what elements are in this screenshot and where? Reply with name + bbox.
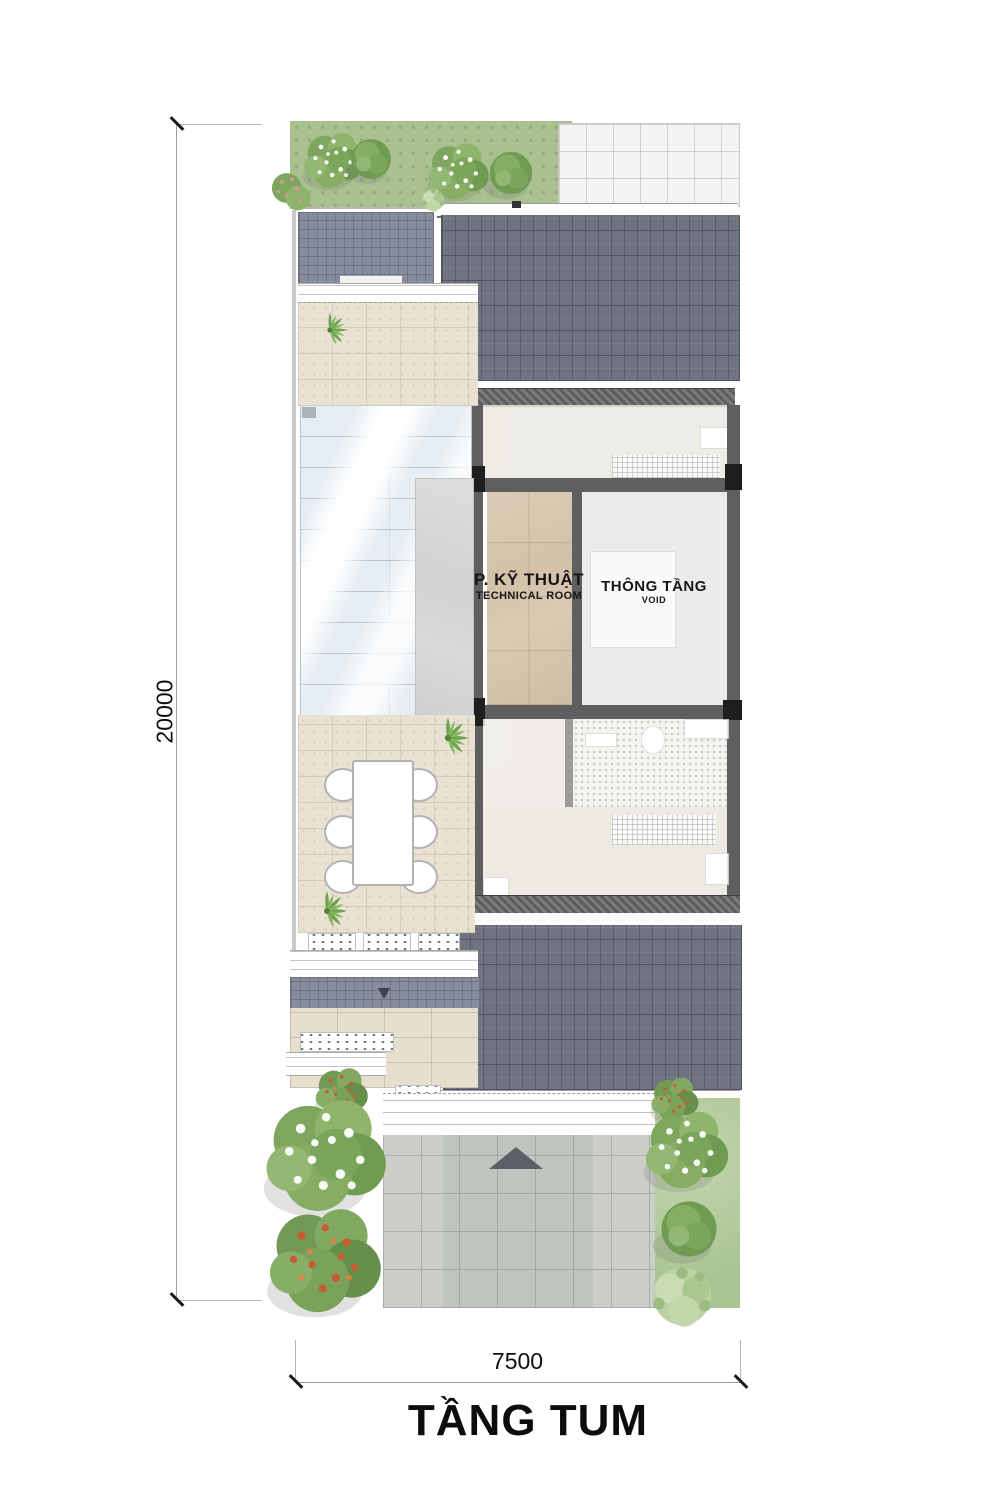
stone-strip xyxy=(415,478,474,717)
dining-table xyxy=(352,760,414,886)
ridge-marker-icon xyxy=(512,201,521,208)
roof-garden xyxy=(290,121,572,209)
horizontal-dimension-label: 7500 xyxy=(295,1348,740,1375)
ledge-band xyxy=(286,1052,386,1076)
wall-horizontal-lower xyxy=(483,705,727,719)
slope-arrow-icon xyxy=(378,988,390,999)
furniture-shape xyxy=(483,877,509,897)
extension-line-right xyxy=(740,1340,741,1382)
interior-room-upper xyxy=(483,405,728,479)
ledge-band xyxy=(290,950,478,979)
counter-shape xyxy=(684,719,729,739)
paved-tile-area xyxy=(558,123,740,207)
floor-plan: P. KỸ THUẬT TECHNICAL ROOM THÔNG TẦNG VO… xyxy=(0,0,1000,1340)
skylight-corner-marker xyxy=(302,407,316,418)
plot-boundary-line xyxy=(292,210,296,1008)
toilet-shape xyxy=(641,726,665,754)
red-bush-icon xyxy=(267,1209,381,1317)
wall-section-bottom xyxy=(443,895,740,915)
entrance-arrow-icon xyxy=(489,1147,543,1169)
wall-horizontal-upper xyxy=(483,478,727,492)
counter-shape xyxy=(585,733,617,747)
railing-panel xyxy=(308,933,356,951)
room-subtitle: VOID xyxy=(642,595,666,605)
room-name: THÔNG TẦNG xyxy=(601,578,707,595)
side-lawn xyxy=(655,1098,740,1308)
main-roof-top xyxy=(441,215,740,381)
entrance-porch-steps xyxy=(383,1093,660,1137)
room-label-void: THÔNG TẦNG VOID xyxy=(579,578,729,605)
terrace-step-band xyxy=(298,283,478,304)
railing-panel xyxy=(418,933,460,951)
terrace-upper xyxy=(298,302,478,406)
furniture-shape xyxy=(705,853,729,885)
room-subtitle: TECHNICAL ROOM xyxy=(476,590,582,602)
flower-bush-icon xyxy=(264,1100,386,1216)
dimension-line-horizontal xyxy=(295,1382,740,1383)
floor-plan-sheet: 20000 P. K xyxy=(0,0,1000,1500)
furniture-grille xyxy=(612,455,720,478)
partition-stub xyxy=(565,719,573,807)
column-block xyxy=(723,700,742,720)
room-name: P. KỸ THUẬT xyxy=(474,570,584,590)
bench-grille xyxy=(612,815,716,845)
eave-gap xyxy=(443,913,740,925)
interior-room-lower xyxy=(483,719,727,895)
main-roof-bottom xyxy=(443,925,742,1090)
page-title: TẦNG TUM xyxy=(278,1396,778,1446)
furniture-shape xyxy=(700,427,729,449)
railing-panel xyxy=(363,933,411,951)
column-block xyxy=(725,464,742,490)
railing-panel xyxy=(300,1032,394,1052)
